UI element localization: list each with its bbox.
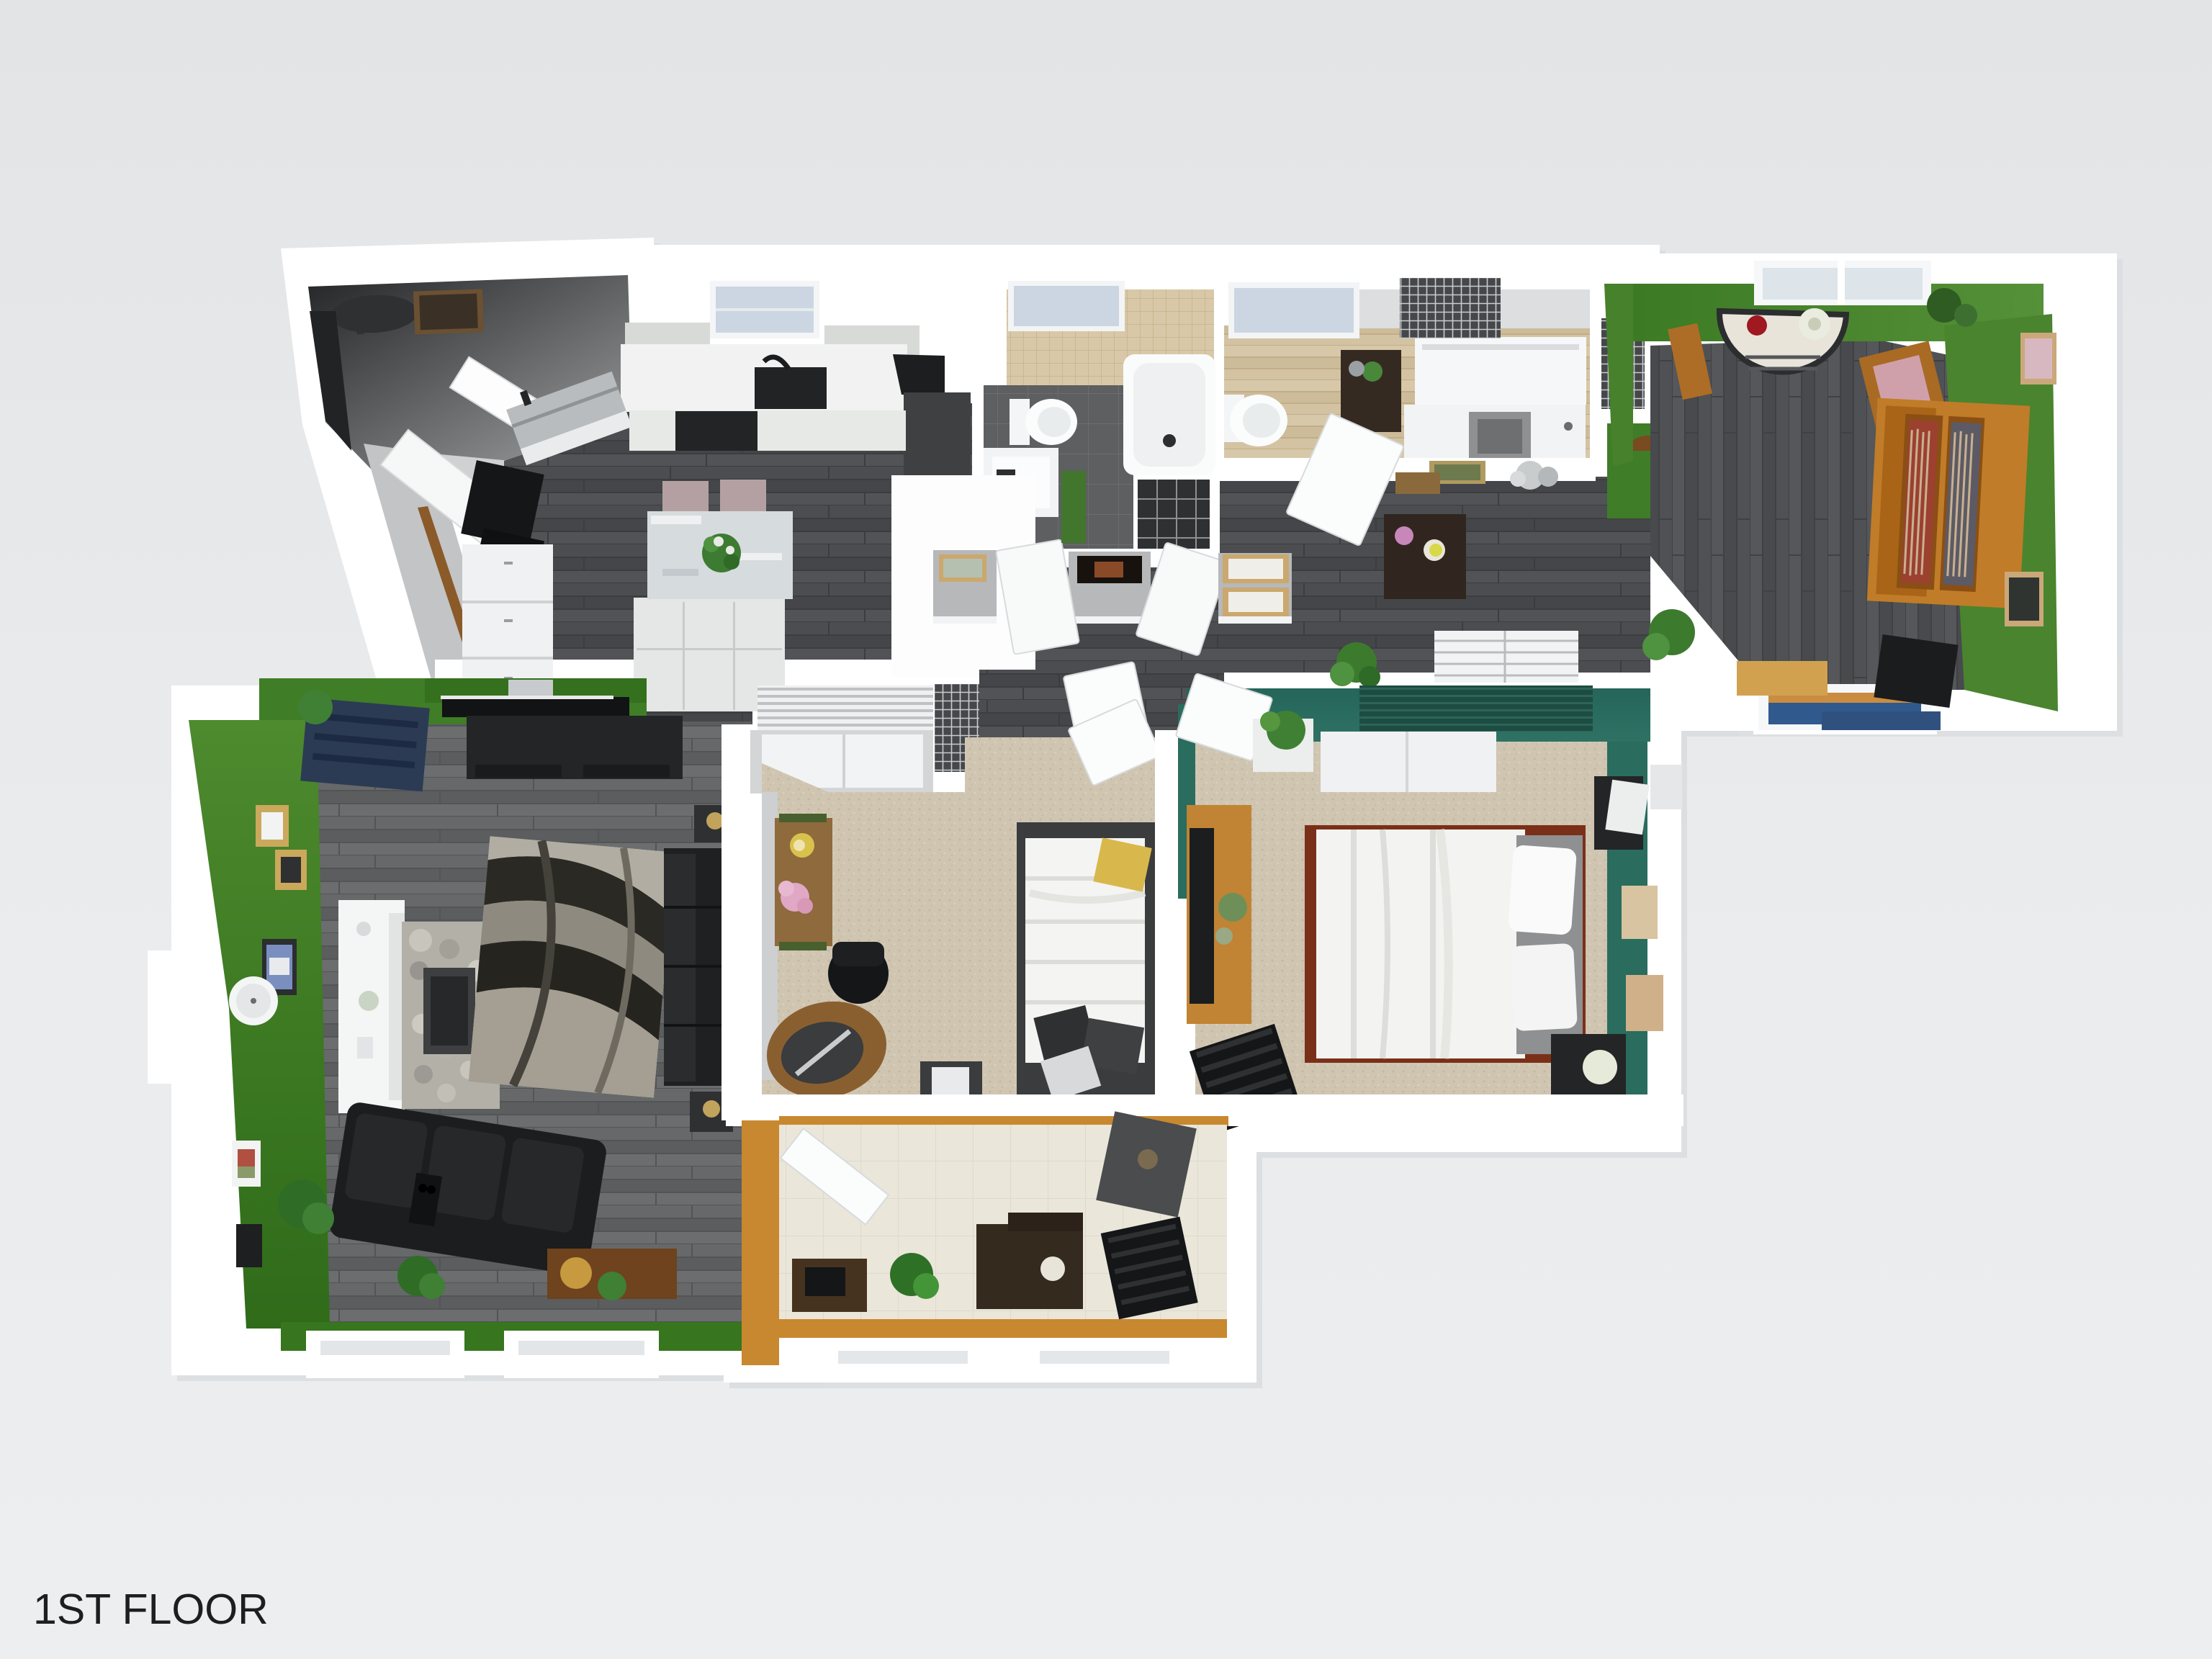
svg-text:1ST FLOOR: 1ST FLOOR [33,1586,269,1633]
